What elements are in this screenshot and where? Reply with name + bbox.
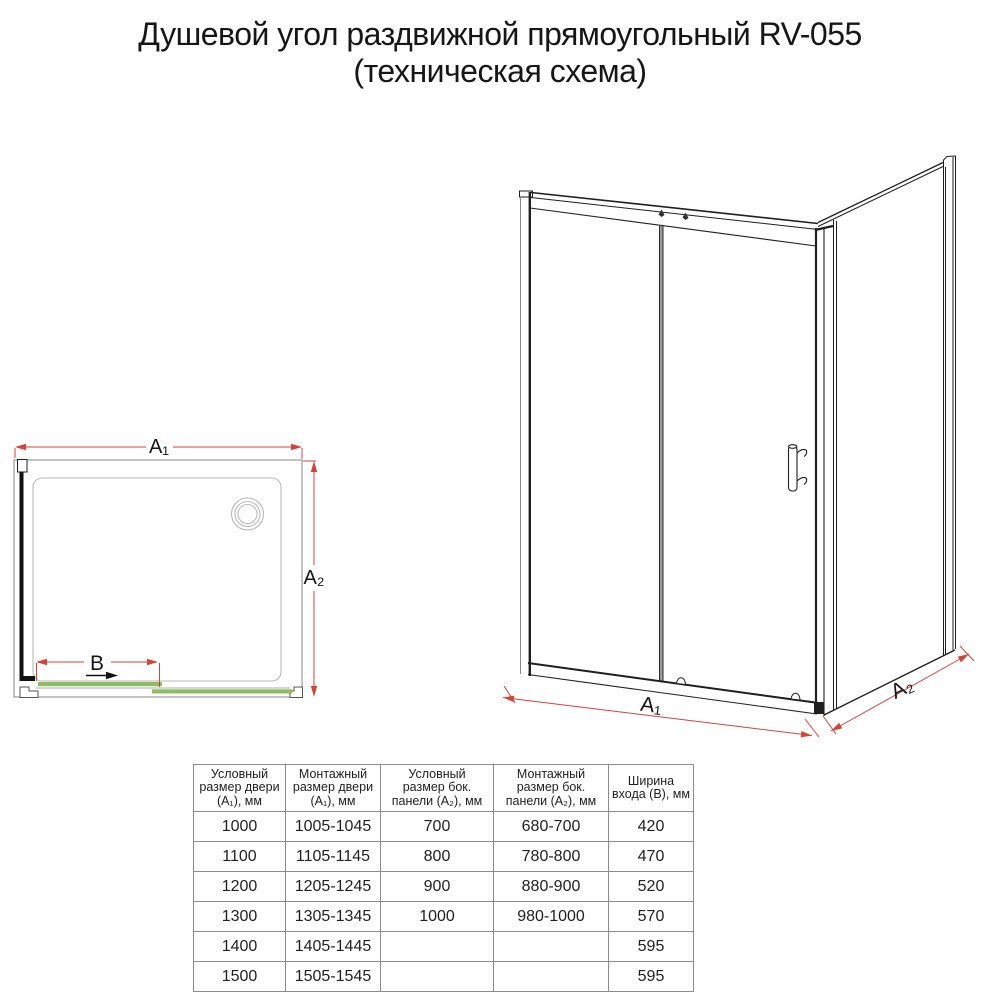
top-rail bbox=[530, 193, 833, 247]
size-table: Условный размер двери (А₁), мм Монтажный… bbox=[193, 764, 694, 992]
table-cell: 1000 bbox=[194, 812, 286, 842]
roller-left bbox=[677, 678, 686, 684]
table-cell: 595 bbox=[609, 962, 694, 992]
table-cell: 1205-1245 bbox=[286, 872, 381, 902]
table-cell: 1300 bbox=[194, 902, 286, 932]
door-handle-icon bbox=[789, 445, 807, 491]
table-cell: 700 bbox=[381, 812, 494, 842]
plan-dim-a1-label: A₁ bbox=[149, 436, 169, 458]
column-header-panel-nominal: Условный размер бок. панели (А₂), мм bbox=[381, 765, 494, 812]
column-header-door-nominal: Условный размер двери (А₁), мм bbox=[194, 765, 286, 812]
table-cell: 520 bbox=[609, 872, 694, 902]
wall-bracket-bottom-left bbox=[20, 687, 38, 698]
shower-tray bbox=[33, 478, 281, 681]
table-cell: 900 bbox=[381, 872, 494, 902]
front-dim-a1-label: A₁ bbox=[639, 693, 663, 718]
wall-profile-top-left bbox=[18, 460, 28, 473]
drain-circle bbox=[232, 498, 264, 530]
table-row: 1000 1005-1045 700 680-700 420 bbox=[194, 812, 694, 842]
table-cell: 800 bbox=[381, 842, 494, 872]
table-cell: 1100 bbox=[194, 842, 286, 872]
table-row: 1500 1505-1545 595 bbox=[194, 962, 694, 992]
table-cell bbox=[494, 932, 609, 962]
sliding-door-inner bbox=[38, 682, 162, 686]
table-row: 1400 1405-1445 595 bbox=[194, 932, 694, 962]
technical-scheme-page: Душевой угол раздвижной прямоугольный RV… bbox=[0, 0, 1000, 1000]
column-header-panel-mounting: Монтажный размер бок. панели (А₂), мм bbox=[494, 765, 609, 812]
table-row: 1200 1205-1245 900 880-900 520 bbox=[194, 872, 694, 902]
table-cell: 680-700 bbox=[494, 812, 609, 842]
roller-right bbox=[791, 693, 800, 699]
table-cell: 880-900 bbox=[494, 872, 609, 902]
table-header-row: Условный размер двери (А₁), мм Монтажный… bbox=[194, 765, 694, 812]
page-title-line2: (техническая схема) bbox=[0, 53, 1000, 90]
column-header-door-mounting: Монтажный размер двери (А₁), мм bbox=[286, 765, 381, 812]
table-cell: 1305-1345 bbox=[286, 902, 381, 932]
table-cell: 420 bbox=[609, 812, 694, 842]
table-cell: 470 bbox=[609, 842, 694, 872]
front-view-diagram: A₁ A₂ bbox=[490, 140, 1000, 740]
table-cell: 595 bbox=[609, 932, 694, 962]
column-header-entrance-width: Ширина входа (В), мм bbox=[609, 765, 694, 812]
table-cell: 570 bbox=[609, 902, 694, 932]
table-cell: 1400 bbox=[194, 932, 286, 962]
plan-dim-b-label: B bbox=[90, 652, 104, 675]
plan-view-diagram: A₁ A₂ B bbox=[0, 420, 340, 720]
front-dim-a2-label: A₂ bbox=[887, 673, 917, 704]
side-panel bbox=[818, 156, 956, 715]
plan-dim-a2-label: A₂ bbox=[303, 567, 324, 589]
table-cell: 780-800 bbox=[494, 842, 609, 872]
table-cell: 1500 bbox=[194, 962, 286, 992]
table-cell: 1200 bbox=[194, 872, 286, 902]
front-dimension-a1 bbox=[503, 686, 819, 737]
page-title: Душевой угол раздвижной прямоугольный RV… bbox=[0, 16, 1000, 90]
sliding-door-outer bbox=[152, 689, 292, 693]
table-row: 1100 1105-1145 800 780-800 470 bbox=[194, 842, 694, 872]
door-divider bbox=[660, 226, 664, 681]
table-cell: 980-1000 bbox=[494, 902, 609, 932]
table-cell bbox=[381, 962, 494, 992]
left-wall-profile bbox=[520, 191, 533, 676]
table-cell: 1505-1545 bbox=[286, 962, 381, 992]
table-cell bbox=[494, 962, 609, 992]
page-title-line1: Душевой угол раздвижной прямоугольный RV… bbox=[0, 16, 1000, 53]
table-cell: 1000 bbox=[381, 902, 494, 932]
right-door-profile bbox=[814, 227, 824, 716]
table-row: 1300 1305-1345 1000 980-1000 570 bbox=[194, 902, 694, 932]
enclosure-outline bbox=[14, 460, 302, 697]
table-cell: 1105-1145 bbox=[286, 842, 381, 872]
table-cell: 1005-1045 bbox=[286, 812, 381, 842]
table-cell: 1405-1445 bbox=[286, 932, 381, 962]
table-cell bbox=[381, 932, 494, 962]
